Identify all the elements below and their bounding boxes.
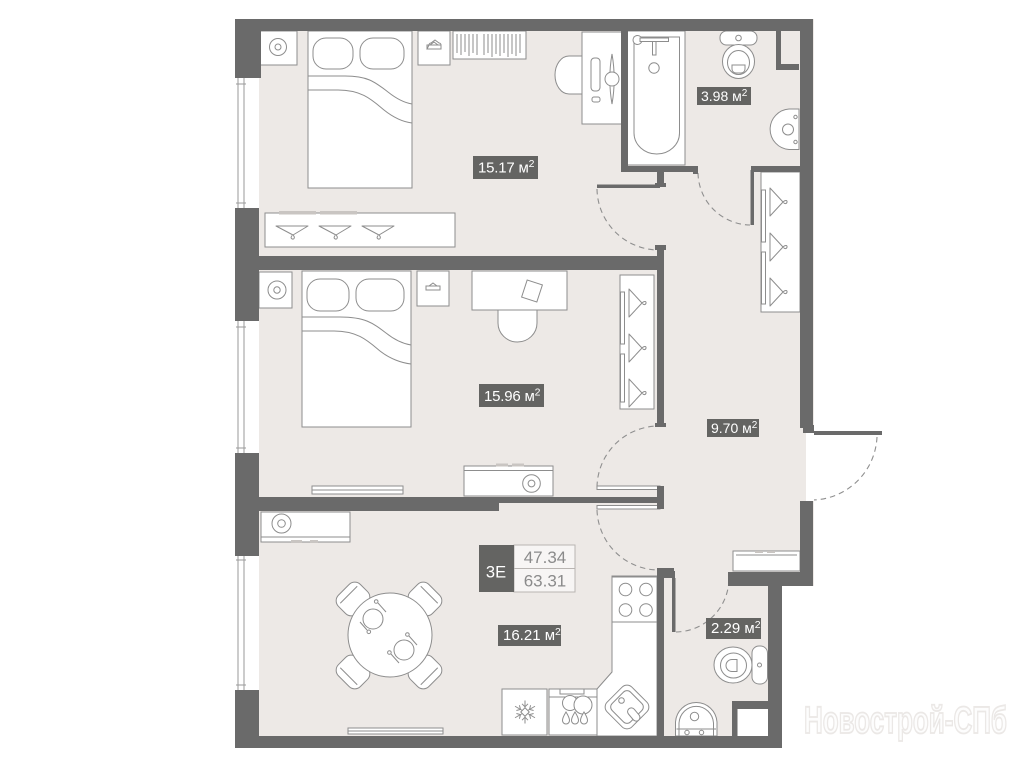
svg-text:63.31: 63.31 xyxy=(524,572,567,591)
svg-text:15.96 м2: 15.96 м2 xyxy=(484,387,541,406)
svg-text:2.29 м2: 2.29 м2 xyxy=(711,619,761,637)
svg-text:47.34: 47.34 xyxy=(524,548,567,567)
svg-text:9.70 м2: 9.70 м2 xyxy=(711,420,758,436)
svg-text:16.21 м2: 16.21 м2 xyxy=(503,626,561,644)
svg-text:3.98 м2: 3.98 м2 xyxy=(701,88,748,104)
svg-text:Новострой-СПб: Новострой-СПб xyxy=(804,699,1007,741)
svg-text:3Е: 3Е xyxy=(486,564,506,582)
svg-text:15.17 м2: 15.17 м2 xyxy=(478,158,535,177)
